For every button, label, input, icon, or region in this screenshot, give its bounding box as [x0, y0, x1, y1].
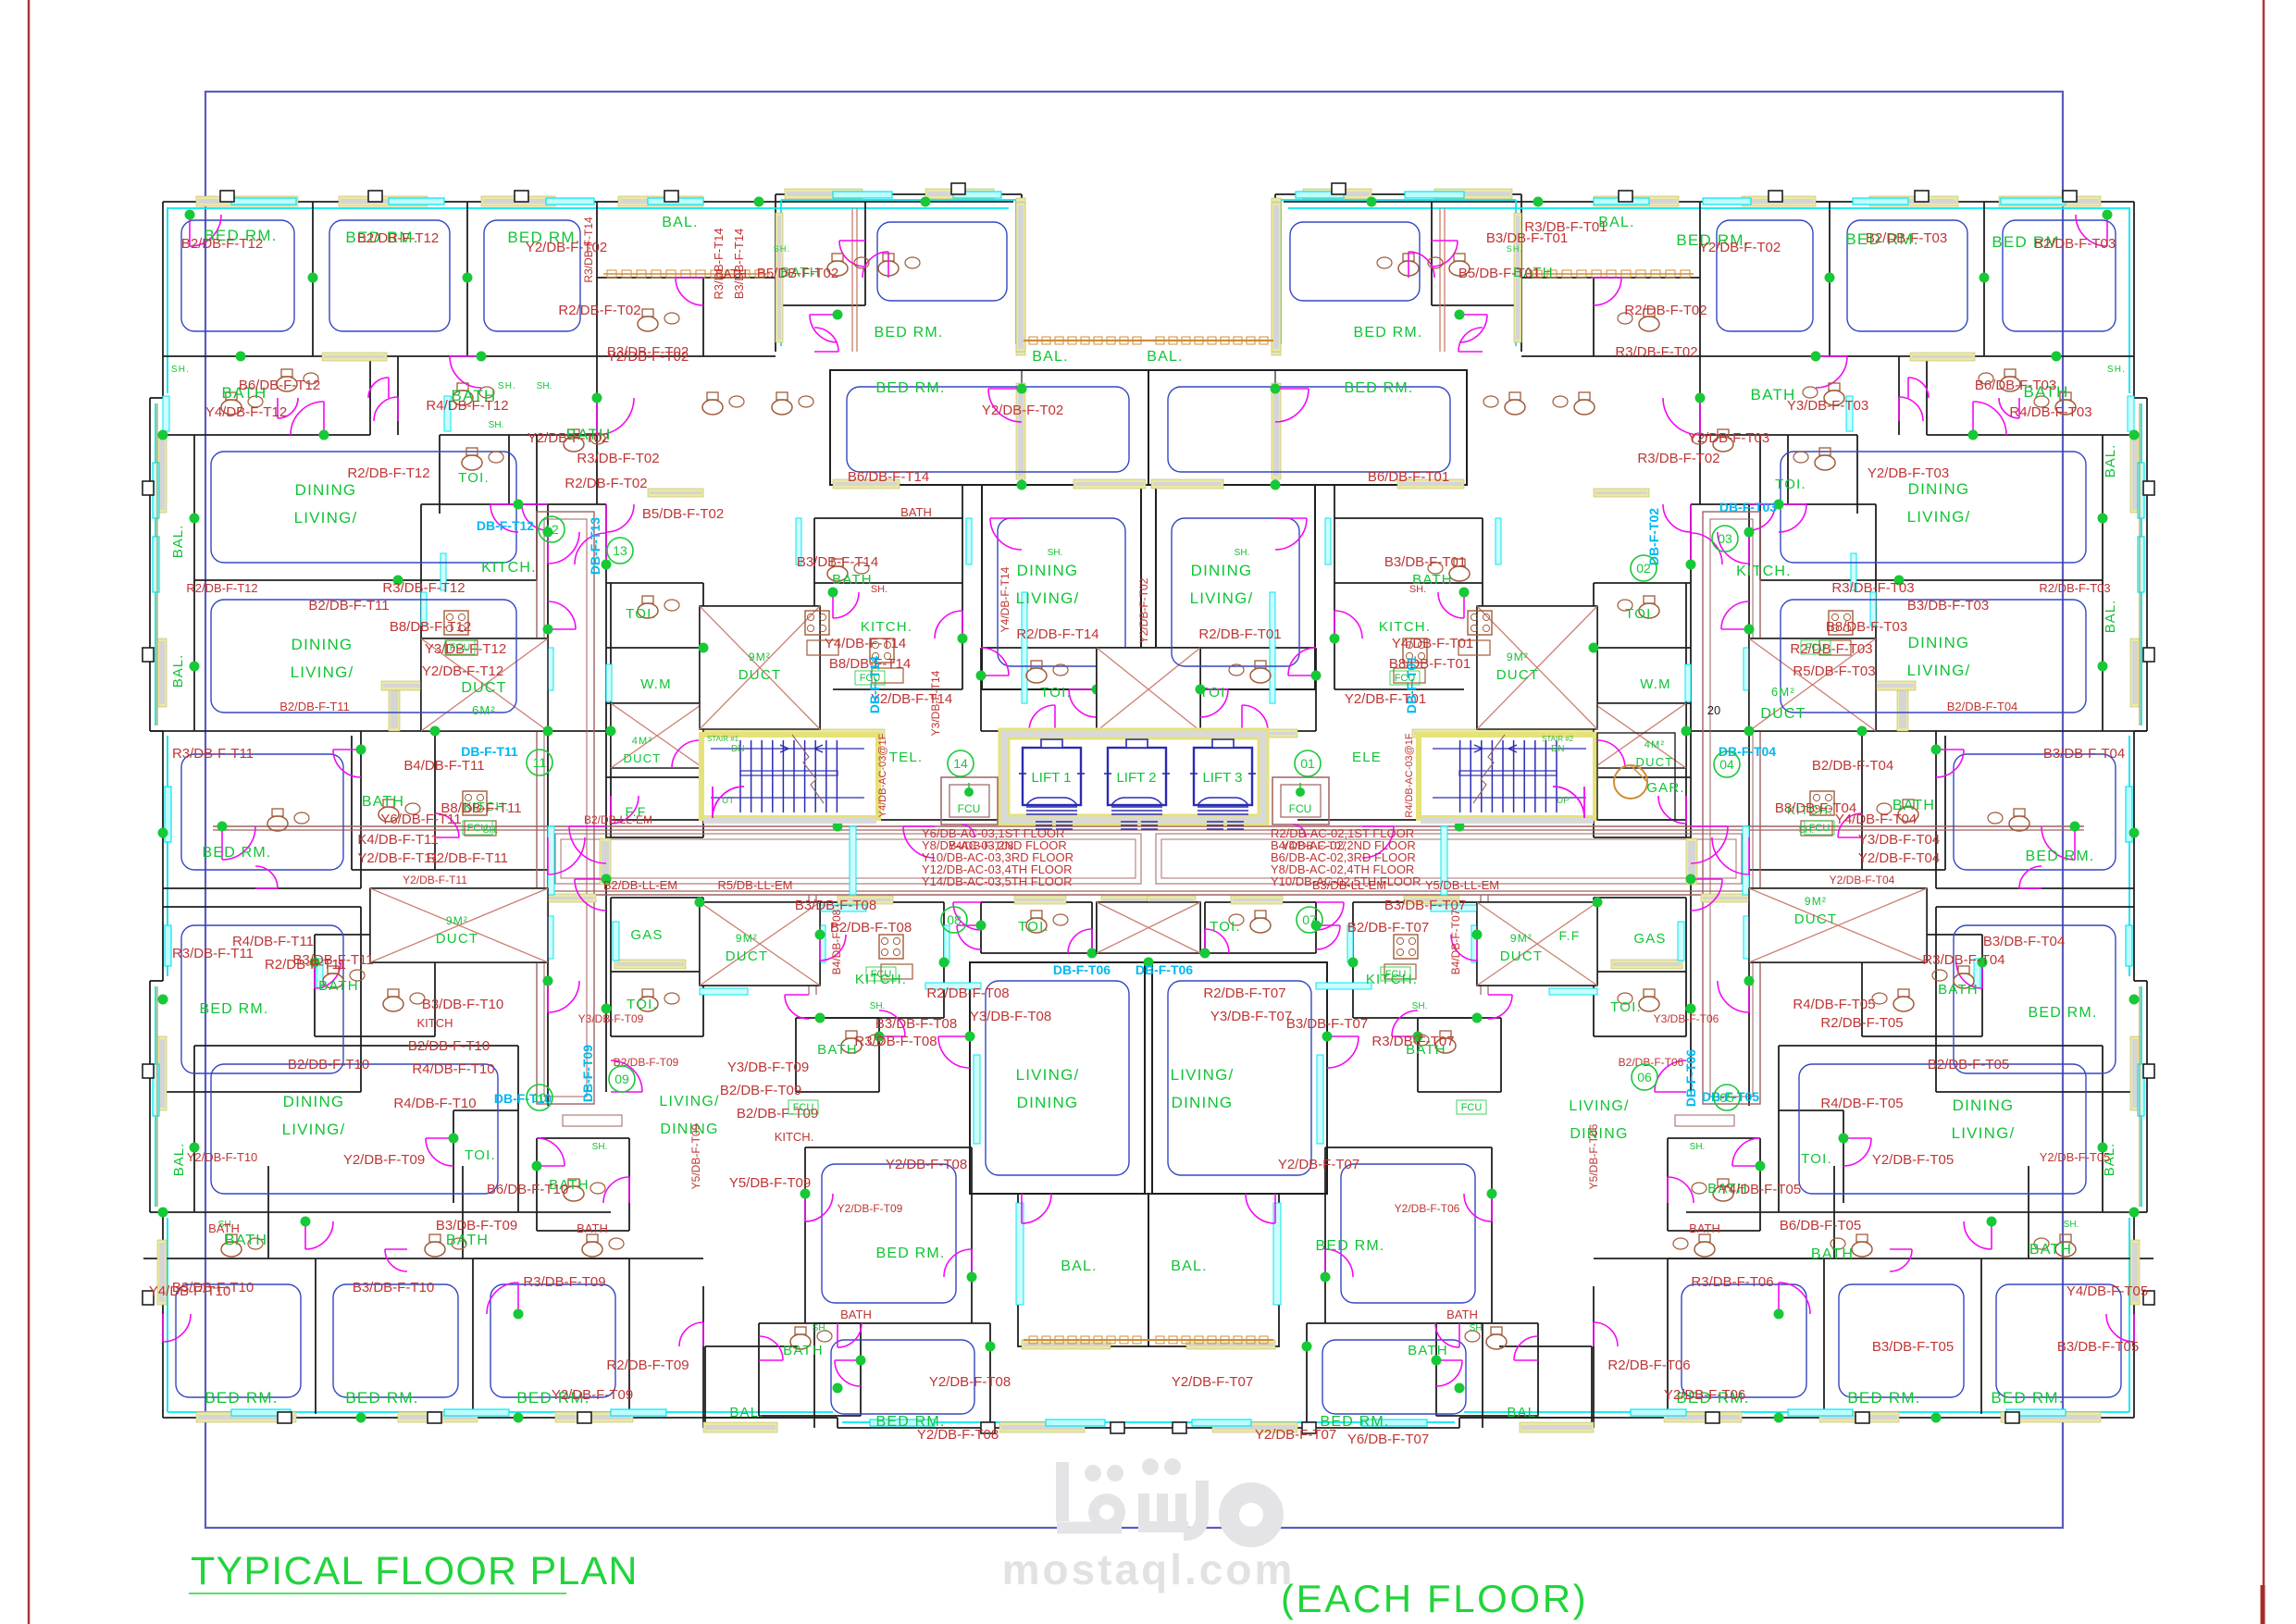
svg-text:(EACH FLOOR): (EACH FLOOR) [1281, 1577, 1588, 1620]
svg-text:B2/DB-F-T09: B2/DB-F-T09 [720, 1083, 801, 1098]
svg-text:R3/DB-F-T14: R3/DB-F-T14 [712, 228, 726, 299]
svg-text:SH.: SH. [1409, 584, 1426, 595]
svg-text:02: 02 [1636, 561, 1651, 576]
svg-text:B3/DB-F-T01: B3/DB-F-T01 [1384, 554, 1466, 570]
svg-text:Y4/DB-F-T01: Y4/DB-F-T01 [1392, 636, 1473, 651]
svg-text:06: 06 [1637, 1070, 1652, 1085]
svg-text:R4/DB-F-T12: R4/DB-F-T12 [426, 398, 508, 414]
svg-text:B3/DB-F-T07: B3/DB-F-T07 [1286, 1016, 1368, 1032]
svg-text:LIVING/: LIVING/ [1907, 662, 1971, 679]
svg-text:DB-F-T11: DB-F-T11 [461, 744, 518, 759]
svg-text:B6/DB-F-T14: B6/DB-F-T14 [848, 469, 929, 485]
svg-text:B2/DB-F-T11: B2/DB-F-T11 [279, 700, 350, 713]
svg-text:Y2/DB-F-T10: Y2/DB-F-T10 [187, 1150, 258, 1164]
svg-text:TOI.: TOI. [1625, 606, 1657, 622]
svg-text:R2/DB-F-T01: R2/DB-F-T01 [1198, 626, 1281, 642]
svg-text:TOI.: TOI. [1210, 919, 1241, 935]
svg-text:DINING: DINING [295, 481, 357, 499]
svg-text:BED RM.: BED RM. [2028, 1005, 2097, 1021]
svg-text:Y3/DB-F-T08: Y3/DB-F-T08 [970, 1009, 1051, 1024]
svg-text:R2/DB-F-T12: R2/DB-F-T12 [186, 581, 257, 595]
svg-text:DN: DN [731, 744, 744, 754]
svg-text:R2/DB-F-T11: R2/DB-F-T11 [427, 850, 508, 866]
svg-text:R3/DB-F-T04: R3/DB-F-T04 [1922, 952, 2004, 968]
svg-text:B2/DB-F-T12: B2/DB-F-T12 [357, 230, 439, 246]
svg-text:BED RM.: BED RM. [1344, 380, 1413, 396]
svg-text:B6/DB-F-T01: B6/DB-F-T01 [1368, 469, 1449, 485]
svg-text:Y6/DB-F-T07: Y6/DB-F-T07 [1347, 1432, 1429, 1447]
svg-text:Y2/DB-F-T07: Y2/DB-F-T07 [1172, 1374, 1253, 1390]
svg-text:GAS: GAS [630, 927, 663, 943]
svg-text:Y2/DB-F-T02: Y2/DB-F-T02 [1137, 577, 1150, 643]
svg-text:B6/DB-F-T10: B6/DB-F-T10 [487, 1182, 568, 1197]
svg-text:FCU: FCU [1461, 1102, 1483, 1113]
svg-text:DINING: DINING [1908, 634, 1970, 651]
svg-text:B8/DB-F-T03: B8/DB-F-T03 [1826, 619, 1907, 635]
svg-text:B3/DB-F-T08: B3/DB-F-T08 [875, 1016, 957, 1032]
svg-text:B2/DB-F-T10: B2/DB-F-T10 [408, 1038, 490, 1054]
svg-text:10: 10 [532, 1090, 547, 1105]
svg-text:Y5/DB-F-T09: Y5/DB-F-T09 [729, 1175, 811, 1191]
svg-text:STAIR #1: STAIR #1 [707, 735, 739, 743]
svg-text:W.M: W.M [1640, 676, 1671, 692]
svg-text:Y3/DB-F-T06: Y3/DB-F-T06 [1654, 1012, 1719, 1025]
svg-text:LIVING/: LIVING/ [1907, 508, 1971, 526]
svg-text:Y2/DB-F-T04: Y2/DB-F-T04 [1858, 850, 1940, 866]
svg-text:Y4/DB-F-T14: Y4/DB-F-T14 [999, 566, 1011, 632]
svg-text:B8/DB-F-T12: B8/DB-F-T12 [390, 619, 471, 635]
svg-text:6M²: 6M² [472, 703, 496, 717]
svg-text:FCU: FCU [793, 1102, 814, 1113]
svg-text:DB-F-T06: DB-F-T06 [1136, 962, 1193, 977]
svg-text:FCU: FCU [450, 642, 471, 653]
svg-text:TOI.: TOI. [626, 606, 657, 622]
svg-text:Y2/DB-F-T06: Y2/DB-F-T06 [1395, 1202, 1460, 1215]
svg-text:DUCT: DUCT [1794, 911, 1837, 927]
svg-text:05: 05 [1719, 1090, 1734, 1105]
svg-text:TOI.: TOI. [1199, 685, 1231, 700]
svg-text:Y3/DB-F-T04: Y3/DB-F-T04 [1858, 832, 1940, 848]
svg-text:Y2/DB-F-T08: Y2/DB-F-T08 [917, 1427, 999, 1443]
svg-text:BED RM.: BED RM. [2025, 849, 2094, 864]
svg-text:DB-F-T06: DB-F-T06 [1683, 1049, 1698, 1107]
svg-text:01: 01 [1300, 756, 1315, 771]
svg-text:B4/DB-F-T07: B4/DB-F-T07 [1449, 909, 1462, 974]
svg-text:B2/DB-F-T10: B2/DB-F-T10 [288, 1057, 369, 1072]
svg-text:R3/DB-F-T07: R3/DB-F-T07 [1371, 1034, 1454, 1049]
svg-text:B5/DB-F-T01: B5/DB-F-T01 [1458, 266, 1540, 281]
svg-text:04: 04 [1719, 757, 1734, 772]
svg-text:BED RM.: BED RM. [199, 1001, 268, 1017]
svg-text:TYPICAL FLOOR PLAN: TYPICAL FLOOR PLAN [191, 1549, 639, 1593]
svg-text:BATH: BATH [1811, 1246, 1854, 1262]
svg-text:R2/DB-F-T07: R2/DB-F-T07 [1203, 986, 1285, 1001]
svg-text:LIFT 2: LIFT 2 [1116, 770, 1156, 786]
svg-text:B8/DB-F-T11: B8/DB-F-T11 [441, 800, 521, 816]
svg-text:SH.: SH. [870, 1001, 886, 1011]
svg-text:B8/DB-F-T04: B8/DB-F-T04 [1775, 800, 1856, 816]
svg-text:Y4/DB-F-T05: Y4/DB-F-T05 [2066, 1283, 2148, 1299]
svg-text:UT: UT [722, 796, 734, 806]
svg-text:Y4/DB-F-T12: Y4/DB-F-T12 [205, 404, 287, 420]
svg-text:BAL.: BAL. [170, 654, 186, 688]
svg-text:SH.: SH. [1690, 1142, 1706, 1152]
svg-text:DB-F-T09: DB-F-T09 [580, 1045, 595, 1102]
svg-text:6M²: 6M² [1771, 685, 1795, 699]
svg-text:R5/DB-LL-EM: R5/DB-LL-EM [718, 878, 793, 892]
svg-text:DINING: DINING [283, 1093, 345, 1110]
svg-text:Y4/DB-F-T05: Y4/DB-F-T05 [1719, 1182, 1801, 1197]
svg-text:Y2/DB-F-T05: Y2/DB-F-T05 [1872, 1152, 1954, 1168]
svg-text:R5/DB-F-T03: R5/DB-F-T03 [1793, 663, 1875, 679]
svg-text:Y4/DB-AC-03@1F: Y4/DB-AC-03@1F [877, 733, 888, 817]
svg-text:DUCT: DUCT [624, 751, 662, 765]
svg-text:LIVING/: LIVING/ [659, 1094, 719, 1110]
svg-text:BAL.: BAL. [1032, 349, 1069, 365]
svg-text:B4/DB-F-T08: B4/DB-F-T08 [830, 909, 843, 974]
svg-text:FCU: FCU [860, 673, 881, 684]
svg-text:B2/DB-F-T03: B2/DB-F-T03 [1866, 230, 1947, 246]
svg-text:14: 14 [953, 756, 968, 771]
svg-text:DUCT: DUCT [1760, 706, 1806, 722]
svg-text:LIVING/: LIVING/ [1569, 1098, 1629, 1114]
svg-text:R2/DB-F-T14: R2/DB-F-T14 [1016, 626, 1098, 642]
svg-text:BATH: BATH [577, 1221, 608, 1235]
svg-text:R2/DB-F-T02: R2/DB-F-T02 [1624, 303, 1706, 318]
svg-text:R4/DB-F-T10: R4/DB-F-T10 [393, 1096, 476, 1111]
svg-text:08: 08 [947, 912, 962, 927]
svg-text:B3/DB-LL-EM: B3/DB-LL-EM [1312, 878, 1386, 892]
svg-text:BAL.: BAL. [1507, 1405, 1541, 1420]
svg-text:SH.: SH. [774, 244, 791, 254]
svg-text:LIVING/: LIVING/ [1171, 1066, 1235, 1084]
svg-text:Y3/DB-F-T14: Y3/DB-F-T14 [929, 670, 942, 736]
svg-text:SH.: SH. [2107, 365, 2126, 375]
svg-text:9M²: 9M² [446, 914, 468, 927]
svg-text:Y2/DB-F-T11: Y2/DB-F-T11 [403, 874, 467, 886]
svg-text:BATH: BATH [1689, 1221, 1720, 1235]
svg-text:BED RM.: BED RM. [1353, 325, 1422, 341]
svg-text:TOI.: TOI. [458, 470, 490, 486]
svg-text:Y2/DB-F-T02: Y2/DB-F-T02 [1699, 240, 1781, 255]
svg-text:TOI.: TOI. [1775, 477, 1806, 492]
svg-text:Y2/DB-F-T12: Y2/DB-F-T12 [422, 663, 503, 679]
svg-text:BATH: BATH [840, 1308, 872, 1321]
svg-text:B3/DB-F-T01: B3/DB-F-T01 [1486, 230, 1568, 246]
svg-text:BED RM.: BED RM. [205, 1389, 278, 1407]
svg-text:DINING: DINING [1908, 480, 1970, 498]
svg-text:B3/DB-F-T09: B3/DB-F-T09 [436, 1218, 517, 1233]
svg-text:B5/DB-F-T02: B5/DB-F-T02 [642, 506, 724, 522]
svg-text:Y5/DB-LL-EM: Y5/DB-LL-EM [1425, 878, 1499, 892]
svg-text:DINING: DINING [1172, 1094, 1234, 1111]
svg-text:B3/DB-F-T05: B3/DB-F-T05 [1872, 1339, 1954, 1355]
svg-text:DINING: DINING [292, 636, 354, 653]
svg-text:Y2/DB-F-T08: Y2/DB-F-T08 [886, 1157, 967, 1172]
svg-text:Y14/DB-AC-03,5TH FLOOR: Y14/DB-AC-03,5TH FLOOR [922, 874, 1073, 888]
svg-text:Y2/DB-F-T07: Y2/DB-F-T07 [1255, 1427, 1336, 1443]
svg-text:Y3/DB-F-T09: Y3/DB-F-T09 [578, 1012, 644, 1025]
svg-text:DUCT: DUCT [461, 680, 506, 696]
svg-text:GAR.: GAR. [1646, 780, 1684, 796]
svg-text:R2/DB-F-T02: R2/DB-F-T02 [558, 303, 640, 318]
svg-text:SH.: SH. [1470, 1323, 1485, 1333]
svg-text:Y2/DB-F-T06: Y2/DB-F-T06 [1664, 1387, 1745, 1403]
svg-text:B3/DB-F-T10: B3/DB-F-T10 [172, 1280, 254, 1295]
svg-text:R2/DB-F-T11: R2/DB-F-T11 [265, 957, 346, 973]
svg-text:DUCT: DUCT [1496, 667, 1539, 683]
svg-text:BED RM.: BED RM. [1315, 1238, 1384, 1254]
svg-text:4M²: 4M² [632, 736, 653, 747]
svg-text:07: 07 [1302, 912, 1317, 927]
svg-text:LIVING/: LIVING/ [1190, 589, 1254, 607]
svg-text:BATH: BATH [318, 978, 359, 994]
svg-text:TOI.: TOI. [1040, 685, 1072, 700]
svg-text:B3/DB-F-T02: B3/DB-F-T02 [607, 344, 689, 360]
svg-text:R2/DB-F-T02: R2/DB-F-T02 [565, 476, 647, 491]
svg-text:BED RM.: BED RM. [1991, 1389, 2064, 1407]
svg-text:Y2/DB-F-T03: Y2/DB-F-T03 [1688, 430, 1769, 446]
svg-text:Y5/DB-F-T09: Y5/DB-F-T09 [689, 1123, 702, 1189]
svg-text:DINING: DINING [1017, 1094, 1079, 1111]
svg-text:BAL.: BAL. [171, 1143, 187, 1177]
svg-text:BED RM.: BED RM. [202, 845, 271, 861]
svg-text:BED RM.: BED RM. [875, 1246, 945, 1261]
svg-text:SH.: SH. [1235, 548, 1250, 558]
svg-text:LIVING/: LIVING/ [291, 663, 354, 681]
svg-text:BED RM.: BED RM. [874, 325, 943, 341]
svg-text:BAL.: BAL. [2103, 600, 2118, 634]
svg-text:R3/DB-F-T12: R3/DB-F-T12 [382, 580, 465, 596]
svg-text:LIVING/: LIVING/ [294, 509, 358, 527]
svg-text:KITCH: KITCH [417, 1016, 453, 1030]
svg-text:DUCT: DUCT [1500, 948, 1543, 964]
svg-text:DB-F-T12: DB-F-T12 [477, 518, 534, 533]
svg-text:R2/DB-F-T06: R2/DB-F-T06 [1607, 1357, 1690, 1373]
svg-text:TOI.: TOI. [1801, 1151, 1832, 1167]
svg-text:09: 09 [614, 1072, 629, 1086]
svg-text:KITCH.: KITCH. [1736, 564, 1792, 579]
svg-text:DN: DN [1551, 744, 1564, 754]
svg-text:FCU: FCU [958, 802, 981, 815]
svg-text:9M²: 9M² [1510, 932, 1533, 945]
svg-text:BATH: BATH [446, 1233, 489, 1248]
svg-text:R2/DB-F-T09: R2/DB-F-T09 [606, 1357, 689, 1373]
svg-text:TOI.: TOI. [465, 1147, 496, 1163]
svg-text:BATH: BATH [715, 267, 747, 280]
svg-text:Y2/DB-F-T02: Y2/DB-F-T02 [527, 430, 609, 446]
svg-text:BAL.: BAL. [1171, 1258, 1208, 1274]
svg-text:BATH: BATH [1408, 1343, 1448, 1358]
svg-text:BATH: BATH [817, 1042, 858, 1058]
svg-text:KITCH.: KITCH. [861, 619, 912, 635]
svg-text:BAL.: BAL. [2103, 444, 2118, 478]
svg-text:R4/DB-F-T05: R4/DB-F-T05 [1793, 997, 1875, 1012]
svg-text:B2/DB-F-T04: B2/DB-F-T04 [1812, 758, 1893, 774]
svg-text:Y4/DB-F-T14: Y4/DB-F-T14 [825, 636, 906, 651]
svg-text:R2/DB-F-T12: R2/DB-F-T12 [347, 465, 429, 481]
svg-text:B3/DB-F-T14: B3/DB-F-T14 [797, 554, 878, 570]
svg-text:W.M: W.M [640, 676, 672, 692]
svg-text:13: 13 [613, 543, 627, 558]
svg-text:R3/DB-F-T11: R3/DB-F-T11 [172, 946, 254, 961]
svg-text:TOI.: TOI. [1610, 999, 1642, 1015]
svg-text:SH.: SH. [592, 1142, 608, 1152]
svg-text:Y2/DB-F-T08: Y2/DB-F-T08 [929, 1374, 1011, 1390]
svg-text:Y2/DB-F-T05: Y2/DB-F-T05 [2040, 1150, 2111, 1164]
svg-text:BED RM.: BED RM. [345, 1389, 418, 1407]
svg-text:SH.: SH. [537, 381, 552, 391]
svg-text:FCU: FCU [1395, 673, 1416, 684]
svg-text:B2/DB-F-T07: B2/DB-F-T07 [1347, 920, 1429, 936]
svg-text:R3/DB-F-T09: R3/DB-F-T09 [523, 1274, 605, 1290]
svg-text:Y2/DB-F-T07: Y2/DB-F-T07 [1278, 1157, 1359, 1172]
svg-text:KITCH.: KITCH. [775, 1130, 814, 1144]
svg-text:B2/DB-F-T03: B2/DB-F-T03 [2034, 236, 2116, 252]
svg-text:9M²: 9M² [1805, 895, 1827, 908]
svg-text:FCU: FCU [1289, 802, 1312, 815]
svg-text:4M²: 4M² [1644, 739, 1666, 750]
svg-text:BATH: BATH [900, 505, 932, 519]
svg-text:LIFT 1: LIFT 1 [1031, 770, 1071, 786]
svg-text:BAL.: BAL. [170, 525, 186, 559]
svg-text:TOI.: TOI. [1018, 919, 1049, 935]
svg-text:B6/DB-F-T03: B6/DB-F-T03 [1975, 378, 2056, 393]
svg-text:B3/DB-F-T04: B3/DB-F-T04 [1983, 934, 2065, 949]
svg-text:B2/DB-F-T12: B2/DB-F-T12 [181, 236, 263, 252]
svg-text:R3/DB-F-T02: R3/DB-F-T02 [1615, 344, 1697, 360]
svg-text:DINING: DINING [1191, 562, 1253, 579]
svg-text:SH.: SH. [1412, 1001, 1428, 1011]
svg-text:SH.: SH. [489, 420, 504, 430]
svg-text:R2/DB-F-T08: R2/DB-F-T08 [926, 986, 1009, 1001]
svg-text:BAL.: BAL. [662, 215, 699, 230]
svg-text:BAL.: BAL. [729, 1405, 763, 1420]
svg-text:FCU: FCU [871, 969, 892, 980]
svg-text:R2/DB-F-T03: R2/DB-F-T03 [1790, 641, 1872, 657]
svg-text:B3/DB-F-T05: B3/DB-F-T05 [2057, 1339, 2139, 1355]
svg-text:B2/DB-F-T05: B2/DB-F-T05 [1928, 1057, 2009, 1072]
svg-text:R3/DB-F-T06: R3/DB-F-T06 [1691, 1274, 1773, 1290]
svg-text:BED RM.: BED RM. [1847, 1389, 1920, 1407]
svg-text:BATH: BATH [783, 1343, 824, 1358]
svg-text:R2/DB-F-T05: R2/DB-F-T05 [1820, 1015, 1903, 1031]
svg-text:BAL.: BAL. [1061, 1258, 1098, 1274]
svg-text:9M²: 9M² [749, 651, 771, 663]
svg-text:GAS: GAS [1633, 931, 1666, 947]
svg-text:Y2/DB-F-T09: Y2/DB-F-T09 [838, 1202, 903, 1215]
svg-text:R2/DB-F-T03: R2/DB-F-T03 [2039, 581, 2110, 595]
svg-text:DUCT: DUCT [726, 948, 768, 964]
svg-text:DUCT: DUCT [1636, 755, 1674, 769]
svg-text:FCU: FCU [467, 823, 489, 834]
svg-text:B2/DB-F-T09: B2/DB-F-T09 [614, 1056, 679, 1069]
svg-text:Y2/DB-F-T09: Y2/DB-F-T09 [552, 1387, 633, 1403]
svg-text:Y2/DB-F-T09: Y2/DB-F-T09 [343, 1152, 425, 1168]
svg-text:R3/DB-F-T02: R3/DB-F-T02 [1637, 451, 1719, 466]
svg-text:BATH: BATH [208, 1221, 240, 1235]
svg-text:SH.: SH. [813, 1323, 828, 1333]
svg-text:TEL.: TEL. [889, 750, 923, 765]
svg-text:BATH: BATH [1446, 1308, 1478, 1321]
svg-text:STAIR #2: STAIR #2 [1542, 735, 1574, 743]
svg-text:B2/DB-F-T11: B2/DB-F-T11 [308, 598, 389, 614]
svg-text:ELE: ELE [1352, 750, 1382, 765]
svg-text:K4/DB-F-T11: K4/DB-F-T11 [357, 832, 438, 848]
svg-text:Y2/DB-F-T04: Y2/DB-F-T04 [1830, 874, 1895, 886]
svg-text:UP: UP [1557, 796, 1570, 806]
svg-text:B3/DB-F-T14: B3/DB-F-T14 [732, 229, 746, 300]
svg-text:DINING: DINING [1017, 562, 1079, 579]
svg-text:BATH: BATH [832, 572, 873, 588]
svg-text:DUCT: DUCT [738, 667, 781, 683]
svg-text:KITCH.: KITCH. [1379, 619, 1431, 635]
svg-text:B3/DB-F-T03: B3/DB-F-T03 [1907, 598, 1989, 614]
svg-text:LIVING/: LIVING/ [282, 1121, 346, 1138]
svg-text:FCU: FCU [1385, 969, 1407, 980]
svg-text:SH.: SH. [871, 584, 887, 595]
svg-text:B2/DB-LL-EM: B2/DB-LL-EM [584, 813, 652, 826]
svg-text:BATH: BATH [362, 794, 404, 810]
svg-text:LIVING/: LIVING/ [1016, 1066, 1080, 1084]
svg-text:SH.: SH. [1048, 548, 1063, 558]
svg-text:BATH: BATH [1938, 982, 1979, 998]
svg-text:R3/DB-F-T03: R3/DB-F-T03 [1831, 580, 1914, 596]
svg-text:R4/DB-AC-03@1F: R4/DB-AC-03@1F [1404, 733, 1415, 818]
svg-text:R3/DB-F-T08: R3/DB-F-T08 [854, 1034, 937, 1049]
svg-text:F.F: F.F [1558, 928, 1580, 943]
svg-text:B2/DB-LL-EM: B2/DB-LL-EM [603, 878, 677, 892]
svg-text:B4/DB-F-T11: B4/DB-F-T11 [403, 758, 484, 774]
svg-text:SH.: SH. [2064, 1220, 2079, 1230]
svg-text:20: 20 [1707, 703, 1720, 717]
svg-text:03: 03 [1718, 531, 1732, 546]
svg-text:9M²: 9M² [1507, 651, 1529, 663]
svg-text:DINING: DINING [1953, 1097, 2015, 1114]
svg-text:R4/DB-F-T10: R4/DB-F-T10 [412, 1061, 494, 1077]
svg-text:DB-F-T03: DB-F-T03 [1719, 500, 1777, 514]
svg-text:BATH: BATH [2029, 1242, 2072, 1258]
svg-text:R4/DB-F-T05: R4/DB-F-T05 [1820, 1096, 1903, 1111]
svg-text:R3/DB-F-T02: R3/DB-F-T02 [577, 451, 659, 466]
svg-text:mostaql.com: mostaql.com [1002, 1545, 1296, 1593]
svg-text:Y3/DB-F-T03: Y3/DB-F-T03 [1787, 398, 1868, 414]
svg-text:R4/DB-F-T03: R4/DB-F-T03 [2009, 404, 2091, 420]
svg-text:FCU: FCU [1806, 642, 1827, 653]
svg-text:B8/DB-F-T01: B8/DB-F-T01 [1389, 656, 1471, 672]
svg-text:LIVING/: LIVING/ [1016, 589, 1080, 607]
svg-text:BAL.: BAL. [1147, 349, 1184, 365]
svg-text:12: 12 [544, 522, 559, 537]
svg-text:B6/DB-F-T05: B6/DB-F-T05 [1780, 1218, 1861, 1233]
svg-text:DUCT: DUCT [436, 931, 478, 947]
svg-text:Y2/DB-F-T03: Y2/DB-F-T03 [1868, 465, 1949, 481]
svg-text:B2/DB-F-T04: B2/DB-F-T04 [1947, 700, 2018, 713]
svg-text:Y3/DB-F-T09: Y3/DB-F-T09 [727, 1060, 809, 1075]
svg-text:DB-F-T13: DB-F-T13 [588, 517, 602, 575]
svg-text:R3/DB-F-T14: R3/DB-F-T14 [582, 217, 595, 283]
svg-text:LIVING/: LIVING/ [1952, 1124, 2016, 1142]
svg-text:R3/DB-F-T11: R3/DB-F-T11 [172, 746, 254, 762]
svg-text:Y2/DB-F-T02: Y2/DB-F-T02 [982, 403, 1063, 418]
svg-text:B3/DB-F-T04: B3/DB-F-T04 [2043, 746, 2125, 762]
svg-text:KITCH.: KITCH. [481, 560, 537, 576]
svg-text:B3/DB-F-T10: B3/DB-F-T10 [353, 1280, 434, 1295]
svg-text:FCU: FCU [1809, 823, 1831, 834]
svg-text:SH.: SH. [498, 381, 516, 391]
svg-text:TOI.: TOI. [627, 997, 658, 1012]
svg-text:SH.: SH. [171, 365, 190, 375]
